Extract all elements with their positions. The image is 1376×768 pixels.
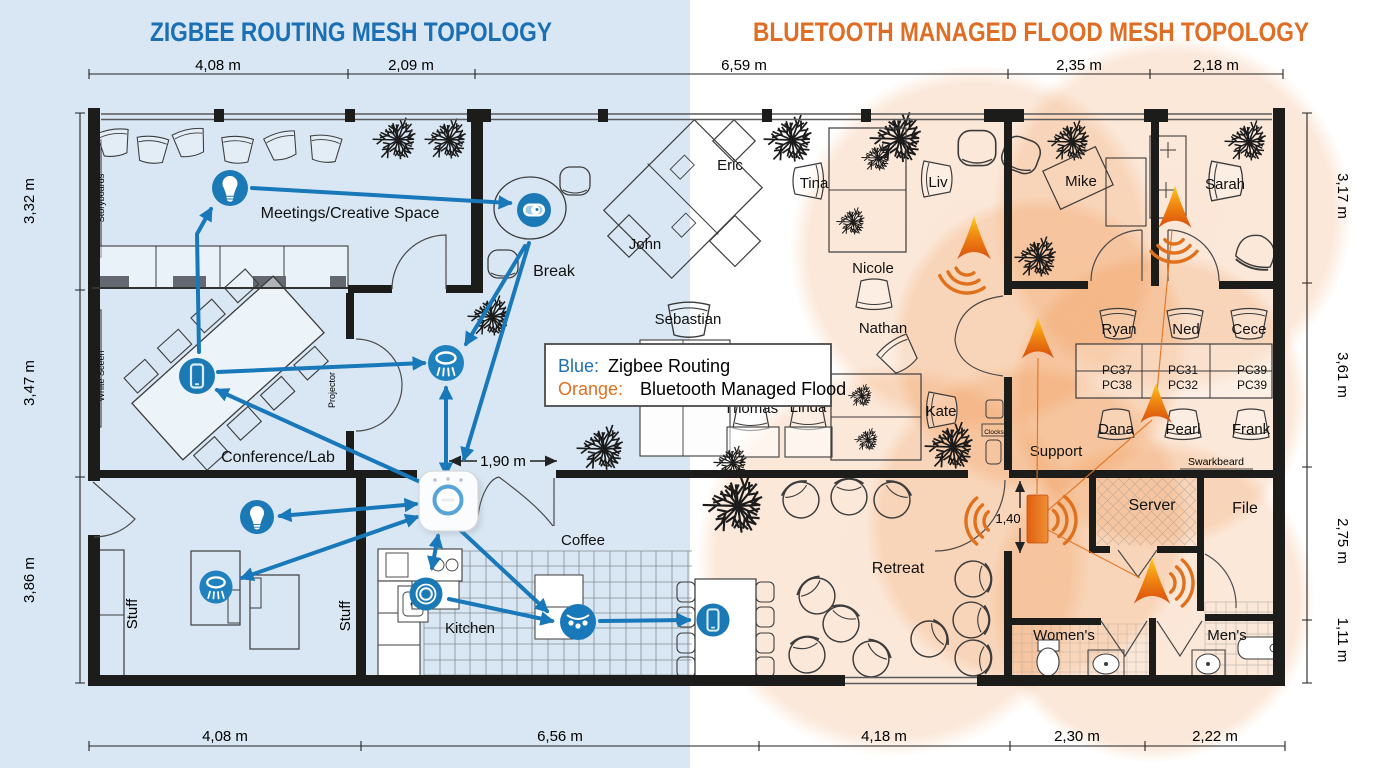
- svg-text:Projector: Projector: [327, 372, 337, 408]
- svg-text:Retreat: Retreat: [872, 560, 925, 577]
- svg-text:1,11 m: 1,11 m: [1334, 618, 1351, 663]
- svg-text:3,17 m: 3,17 m: [1334, 173, 1351, 219]
- svg-text:Stuff: Stuff: [124, 598, 141, 629]
- svg-text:Tina: Tina: [800, 175, 829, 192]
- svg-text:Coffee: Coffee: [561, 532, 605, 549]
- svg-text:Break: Break: [533, 263, 576, 280]
- svg-text:3,47 m: 3,47 m: [21, 360, 38, 406]
- svg-text:Dana: Dana: [1098, 421, 1135, 438]
- svg-text:2,22 m: 2,22 m: [1192, 728, 1238, 745]
- svg-text:Swarkbeard: Swarkbeard: [1188, 456, 1244, 468]
- svg-text:BLUETOOTH MANAGED FLOOD MESH T: BLUETOOTH MANAGED FLOOD MESH TOPOLOGY: [753, 17, 1309, 47]
- svg-text:Nicole: Nicole: [852, 260, 894, 277]
- svg-text:2,09 m: 2,09 m: [388, 57, 434, 74]
- svg-text:Eric: Eric: [717, 157, 743, 174]
- svg-text:4,08 m: 4,08 m: [202, 728, 248, 745]
- svg-text:Clocks: Clocks: [984, 429, 1004, 436]
- svg-text:Zigbee Routing: Zigbee Routing: [608, 356, 730, 376]
- svg-text:Orange:: Orange:: [558, 379, 623, 399]
- svg-text:2,75 m: 2,75 m: [1334, 518, 1351, 564]
- svg-text:Liv: Liv: [928, 174, 948, 191]
- svg-text:PC38: PC38: [1102, 378, 1132, 392]
- svg-text:Ned: Ned: [1172, 321, 1200, 338]
- svg-text:4,18 m: 4,18 m: [861, 728, 907, 745]
- svg-text:1,40: 1,40: [995, 511, 1020, 526]
- svg-text:PC39: PC39: [1237, 378, 1267, 392]
- svg-text:2,35 m: 2,35 m: [1056, 57, 1102, 74]
- svg-text:Pearl: Pearl: [1165, 421, 1200, 438]
- svg-text:Stuff: Stuff: [337, 600, 354, 631]
- svg-text:ZIGBEE ROUTING MESH TOPOLOGY: ZIGBEE ROUTING MESH TOPOLOGY: [150, 17, 552, 47]
- svg-text:Sebastian: Sebastian: [655, 311, 722, 328]
- svg-text:1,90 m: 1,90 m: [480, 453, 526, 470]
- svg-text:Bluetooth Managed Flood: Bluetooth Managed Flood: [640, 379, 846, 399]
- svg-text:3,61 m: 3,61 m: [1334, 352, 1351, 398]
- svg-text:Meetings/Creative Space: Meetings/Creative Space: [261, 205, 440, 222]
- svg-text:Nathan: Nathan: [859, 320, 907, 337]
- svg-text:6,59 m: 6,59 m: [721, 57, 767, 74]
- svg-text:3,32 m: 3,32 m: [21, 178, 38, 224]
- svg-text:John: John: [629, 236, 662, 253]
- svg-text:PC32: PC32: [1168, 378, 1198, 392]
- svg-text:File: File: [1232, 500, 1258, 517]
- svg-text:Men's: Men's: [1207, 627, 1247, 644]
- svg-text:4,08 m: 4,08 m: [195, 57, 241, 74]
- svg-text:Ryan: Ryan: [1101, 321, 1136, 338]
- svg-text:PC37: PC37: [1102, 363, 1132, 377]
- svg-text:Kitchen: Kitchen: [445, 620, 495, 637]
- svg-text:PC39: PC39: [1237, 363, 1267, 377]
- svg-text:Mike: Mike: [1065, 173, 1097, 190]
- svg-text:2,30 m: 2,30 m: [1054, 728, 1100, 745]
- svg-text:Kate: Kate: [926, 403, 957, 420]
- svg-text:Server: Server: [1128, 497, 1176, 514]
- svg-text:Blue:: Blue:: [558, 356, 599, 376]
- svg-text:Frank: Frank: [1232, 421, 1271, 438]
- svg-text:PC31: PC31: [1168, 363, 1198, 377]
- svg-text:Sarah: Sarah: [1205, 176, 1245, 193]
- svg-text:Women's: Women's: [1033, 627, 1095, 644]
- svg-text:Cece: Cece: [1231, 321, 1266, 338]
- svg-text:6,56 m: 6,56 m: [537, 728, 583, 745]
- svg-text:2,18 m: 2,18 m: [1193, 57, 1239, 74]
- svg-text:3,86 m: 3,86 m: [21, 557, 38, 603]
- svg-text:Conference/Lab: Conference/Lab: [221, 449, 335, 466]
